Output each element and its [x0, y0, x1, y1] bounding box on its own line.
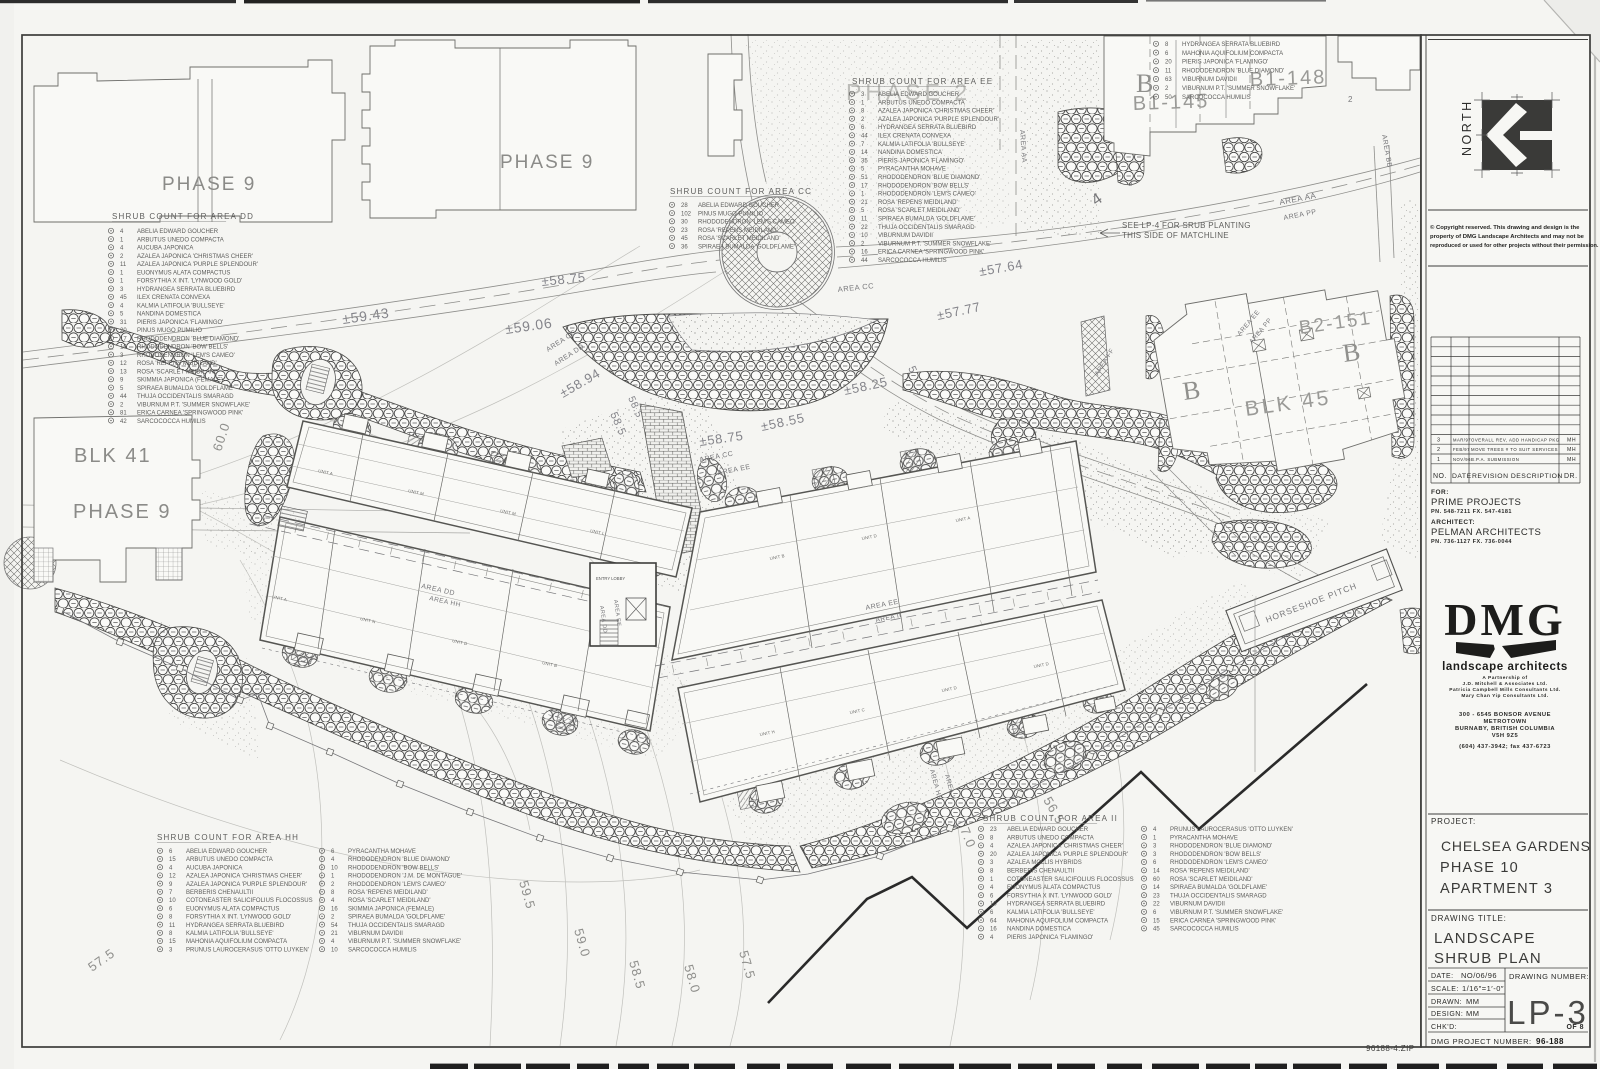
svg-text:THUJA OCCIDENTALIS SMARAGD: THUJA OCCIDENTALIS SMARAGD	[878, 225, 975, 231]
svg-text:20: 20	[120, 328, 127, 334]
svg-text:THUJA OCCIDENTALIS SMARAGD: THUJA OCCIDENTALIS SMARAGD	[1170, 893, 1267, 899]
svg-text:PHASE 10: PHASE 10	[1440, 860, 1519, 876]
svg-text:21: 21	[331, 931, 338, 937]
svg-text:PROJECT:: PROJECT:	[1431, 817, 1476, 826]
svg-text:20: 20	[990, 852, 997, 858]
svg-text:DMG PROJECT NUMBER:: DMG PROJECT NUMBER:	[1431, 1037, 1532, 1046]
svg-text:RHODODENDRON 'BLUE DIAMOND': RHODODENDRON 'BLUE DIAMOND'	[137, 336, 239, 342]
svg-text:RHODODENDRON 'BOW BELLS': RHODODENDRON 'BOW BELLS'	[878, 183, 969, 189]
svg-text:ROSA 'SCARLET MEIDILAND': ROSA 'SCARLET MEIDILAND'	[1170, 877, 1253, 883]
svg-text:APARTMENT 3: APARTMENT 3	[1440, 881, 1553, 897]
svg-text:30: 30	[681, 220, 688, 226]
svg-text:3: 3	[1128, 179, 1133, 188]
svg-text:36: 36	[681, 244, 688, 250]
svg-text:SPIRAEA BUMALDA 'GOLDFLAME': SPIRAEA BUMALDA 'GOLDFLAME'	[878, 217, 975, 223]
svg-text:11: 11	[120, 262, 127, 268]
svg-text:96-188: 96-188	[1536, 1037, 1564, 1046]
svg-text:PHASE 9: PHASE 9	[500, 152, 594, 173]
svg-text:NOV/96: NOV/96	[1453, 457, 1471, 462]
svg-text:11: 11	[1165, 68, 1172, 74]
svg-text:ARBUTUS UNEDO COMPACTA: ARBUTUS UNEDO COMPACTA	[1007, 835, 1094, 841]
svg-text:BERBERIS CHENAULTII: BERBERIS CHENAULTII	[1007, 869, 1075, 875]
svg-text:EUONYMUS ALATA COMPACTUS: EUONYMUS ALATA COMPACTUS	[186, 906, 279, 912]
svg-text:COTONEASTER SALICIFOLIUS FLOCO: COTONEASTER SALICIFOLIUS FLOCOSSUS	[1007, 877, 1134, 883]
svg-text:VIBURNUM DAVIDII: VIBURNUM DAVIDII	[1170, 902, 1225, 908]
svg-text:KALMIA LATIFOLIA 'BULLSEYE': KALMIA LATIFOLIA 'BULLSEYE'	[878, 142, 966, 148]
svg-text:DRAWING TITLE:: DRAWING TITLE:	[1431, 914, 1507, 923]
svg-text:SARCOCOCCA HUMILIS: SARCOCOCCA HUMILIS	[878, 258, 947, 264]
svg-text:RHODODENDRON 'BLUE DIAMOND': RHODODENDRON 'BLUE DIAMOND'	[878, 175, 980, 181]
svg-text:ROSA 'REPENS MEIDILAND': ROSA 'REPENS MEIDILAND'	[1170, 869, 1250, 875]
svg-text:© Copyright reserved. This dra: © Copyright reserved. This drawing and d…	[1430, 224, 1580, 231]
svg-text:MAHONIA AQUIFOLIUM COMPACTA: MAHONIA AQUIFOLIUM COMPACTA	[1007, 918, 1108, 924]
svg-text:AZALEA JAPONICA 'PURPLE SPLEND: AZALEA JAPONICA 'PURPLE SPLENDOUR'	[137, 262, 258, 268]
svg-text:3: 3	[1437, 438, 1441, 444]
svg-text:DR.: DR.	[1564, 473, 1578, 480]
svg-text:300 - 6545 BONSOR AVENUE: 300 - 6545 BONSOR AVENUE	[1459, 712, 1551, 718]
svg-text:ABELIA EDWARD GOUCHER: ABELIA EDWARD GOUCHER	[1007, 827, 1089, 833]
svg-text:Mary Chan Yip Consultants Ltd.: Mary Chan Yip Consultants Ltd.	[1461, 693, 1548, 699]
svg-text:PYRACANTHA MOHAVE: PYRACANTHA MOHAVE	[1170, 835, 1238, 841]
svg-text:VIBURNUM P.T. 'SUMMER SNOWFLAK: VIBURNUM P.T. 'SUMMER SNOWFLAKE'	[1182, 86, 1295, 92]
svg-text:PIERIS JAPONICA 'FLAMINGO': PIERIS JAPONICA 'FLAMINGO'	[878, 158, 964, 164]
svg-text:PHASE 9: PHASE 9	[162, 174, 256, 195]
svg-text:AZALEA JAPONICA 'CHRISTMAS CHE: AZALEA JAPONICA 'CHRISTMAS CHEER'	[137, 254, 253, 260]
svg-text:AZALEA JAPONICA 'PURPLE SPLEND: AZALEA JAPONICA 'PURPLE SPLENDOUR'	[1007, 852, 1128, 858]
svg-text:PRUNUS LAUROCERASUS 'OTTO LUYK: PRUNUS LAUROCERASUS 'OTTO LUYKEN'	[186, 947, 309, 953]
svg-text:64: 64	[990, 918, 997, 924]
svg-text:PELMAN ARCHITECTS: PELMAN ARCHITECTS	[1431, 527, 1541, 538]
svg-text:SARCOCOCCA HUMILIS: SARCOCOCCA HUMILIS	[1170, 927, 1239, 933]
svg-text:21: 21	[861, 200, 868, 206]
svg-text:MAHONIA AQUIFOLIUM COMPACTA: MAHONIA AQUIFOLIUM COMPACTA	[1182, 51, 1283, 57]
svg-text:20: 20	[1165, 60, 1172, 66]
svg-text:15: 15	[169, 857, 176, 863]
svg-text:SARCOCOCCA HUMILIS: SARCOCOCCA HUMILIS	[1182, 95, 1251, 101]
svg-text:KALMIA LATIFOLIA 'BULLSEYE': KALMIA LATIFOLIA 'BULLSEYE'	[186, 931, 274, 937]
svg-text:KALMIA LATIFOLIA 'BULLSEYE': KALMIA LATIFOLIA 'BULLSEYE'	[1007, 910, 1095, 916]
svg-text:PHASE 9: PHASE 9	[73, 501, 171, 523]
svg-text:METROTOWN: METROTOWN	[1483, 719, 1526, 725]
svg-text:VIBURNUM DAVIDII: VIBURNUM DAVIDII	[348, 931, 403, 937]
svg-text:54: 54	[331, 923, 338, 929]
svg-text:RHODODENDRON 'BLUE DIAMOND': RHODODENDRON 'BLUE DIAMOND'	[348, 857, 450, 863]
svg-text:14: 14	[1153, 869, 1160, 875]
svg-text:SPIRAEA BUMALDA 'GOLDFLAME': SPIRAEA BUMALDA 'GOLDFLAME'	[137, 386, 234, 392]
svg-text:AUCUBA JAPONICA: AUCUBA JAPONICA	[186, 865, 242, 871]
svg-text:10: 10	[169, 898, 176, 904]
svg-text:PIERIS JAPONICA 'FLAMINGO': PIERIS JAPONICA 'FLAMINGO'	[137, 320, 223, 326]
svg-text:SKIMMIA JAPONICA (FEMALE): SKIMMIA JAPONICA (FEMALE)	[137, 378, 223, 384]
svg-text:SPIRAEA BUMALDA 'GOLDFLAME': SPIRAEA BUMALDA 'GOLDFLAME'	[1170, 885, 1267, 891]
svg-text:PINUS MUGO PUMILIO: PINUS MUGO PUMILIO	[698, 211, 763, 217]
svg-text:ROSA 'SCARLET MEIDILAND': ROSA 'SCARLET MEIDILAND'	[137, 369, 220, 375]
svg-text:2: 2	[1348, 95, 1353, 104]
svg-text:property of DMG Landscape Arch: property of DMG Landscape Architects and…	[1430, 234, 1585, 240]
svg-text:FORSYTHIA X INT. 'LYNWOOD GOLD: FORSYTHIA X INT. 'LYNWOOD GOLD'	[1007, 893, 1112, 899]
svg-text:45: 45	[1153, 927, 1160, 933]
svg-text:45: 45	[120, 295, 127, 301]
svg-text:LANDSCAPE: LANDSCAPE	[1434, 930, 1536, 947]
svg-text:EUONYMUS ALATA COMPACTUS: EUONYMUS ALATA COMPACTUS	[137, 270, 230, 276]
svg-text:SARCOCOCCA HUMILIS: SARCOCOCCA HUMILIS	[348, 947, 417, 953]
svg-text:AUCUBA JAPONICA: AUCUBA JAPONICA	[137, 246, 193, 252]
svg-text:HYDRANGEA SERRATA BLUEBIRD: HYDRANGEA SERRATA BLUEBIRD	[186, 923, 285, 929]
svg-text:PYRACANTHA MOHAVE: PYRACANTHA MOHAVE	[348, 849, 416, 855]
svg-text:ERICA CARNEA 'SPRINGWOOD PINK': ERICA CARNEA 'SPRINGWOOD PINK'	[1170, 918, 1276, 924]
svg-text:ROSA 'SCARLET MEIDILAND': ROSA 'SCARLET MEIDILAND'	[698, 236, 781, 242]
svg-text:BURNABY, BRITISH COLUMBIA: BURNABY, BRITISH COLUMBIA	[1455, 726, 1555, 732]
svg-text:FEB/97: FEB/97	[1453, 447, 1470, 452]
svg-text:Patricia Campbell Mills Consul: Patricia Campbell Mills Consultants Ltd.	[1449, 687, 1560, 693]
svg-text:OF 8: OF 8	[1566, 1024, 1584, 1031]
svg-text:81: 81	[120, 411, 127, 417]
svg-text:ROSA 'REPENS MEIDILAND': ROSA 'REPENS MEIDILAND'	[348, 890, 428, 896]
svg-text:1/16″=1′-0″: 1/16″=1′-0″	[1462, 984, 1504, 993]
svg-text:ABELIA EDWARD GOUCHER: ABELIA EDWARD GOUCHER	[878, 92, 960, 98]
svg-text:VIBURNUM DAVIDII: VIBURNUM DAVIDII	[878, 233, 933, 239]
svg-text:ROSA 'REPENS MEIDILAND': ROSA 'REPENS MEIDILAND'	[137, 361, 217, 367]
svg-text:SPIRAEA BUMALDA 'GOLDFLAME': SPIRAEA BUMALDA 'GOLDFLAME'	[348, 915, 445, 921]
svg-text:VIBURNUM DAVIDII: VIBURNUM DAVIDII	[1182, 77, 1237, 83]
svg-text:AZALEA JAPONICA 'PURPLE SPLEND: AZALEA JAPONICA 'PURPLE SPLENDOUR'	[186, 882, 307, 888]
svg-text:RHODODENDRON 'BOW BELLS': RHODODENDRON 'BOW BELLS'	[137, 345, 228, 351]
svg-text:ROSA 'SCARLET MEIDILAND': ROSA 'SCARLET MEIDILAND'	[348, 898, 431, 904]
svg-text:PIERIS JAPONICA 'FLAMINGO': PIERIS JAPONICA 'FLAMINGO'	[1182, 60, 1268, 66]
svg-text:11: 11	[861, 217, 868, 223]
svg-text:A Partnership of: A Partnership of	[1482, 675, 1527, 681]
svg-text:EUONYMUS ALATA COMPACTUS: EUONYMUS ALATA COMPACTUS	[1007, 885, 1100, 891]
svg-text:NANDINA DOMESTICA: NANDINA DOMESTICA	[878, 150, 942, 156]
svg-text:ARBUTUS UNEDO COMPACTA: ARBUTUS UNEDO COMPACTA	[137, 237, 224, 243]
svg-text:1: 1	[1437, 457, 1441, 463]
svg-text:14: 14	[861, 150, 868, 156]
svg-text:2: 2	[1437, 447, 1441, 453]
svg-text:16: 16	[990, 927, 997, 933]
svg-text:42: 42	[120, 419, 127, 425]
svg-text:PINUS MUGO PUMILIO: PINUS MUGO PUMILIO	[137, 328, 202, 334]
svg-text:RHODODENDRON 'LEM'S CAMEO': RHODODENDRON 'LEM'S CAMEO'	[698, 220, 796, 226]
svg-text:ROSA 'REPENS MEIDILAND': ROSA 'REPENS MEIDILAND'	[698, 228, 778, 234]
svg-text:SHRUB PLAN: SHRUB PLAN	[1434, 950, 1542, 967]
svg-text:RHODODENDRON 'J.M. DE MONTAGUE: RHODODENDRON 'J.M. DE MONTAGUE'	[348, 874, 462, 880]
svg-text:AZALEA JAPONICA 'PURPLE SPLEND: AZALEA JAPONICA 'PURPLE SPLENDOUR'	[878, 117, 999, 123]
svg-text:AZALEA JAPONICA 'CHRISTMAS CHE: AZALEA JAPONICA 'CHRISTMAS CHEER'	[186, 874, 302, 880]
svg-text:102: 102	[681, 211, 692, 217]
svg-text:COTONEASTER SALICIFOLIUS FLOCO: COTONEASTER SALICIFOLIUS FLOCOSSUS	[186, 898, 313, 904]
svg-text:SPIRAEA BUMALDA 'GOLDFLAME': SPIRAEA BUMALDA 'GOLDFLAME'	[698, 244, 795, 250]
svg-text:RHODODENDRON 'BOW BELLS': RHODODENDRON 'BOW BELLS'	[1170, 852, 1261, 858]
svg-text:ENTRY LOBBY: ENTRY LOBBY	[596, 576, 625, 581]
svg-text:PYRACANTHA MOHAVE: PYRACANTHA MOHAVE	[878, 167, 946, 173]
svg-text:RHODODENDRON 'BOW BELLS': RHODODENDRON 'BOW BELLS'	[348, 865, 439, 871]
svg-text:23: 23	[990, 827, 997, 833]
svg-text:ARBUTUS UNEDO COMPACTA: ARBUTUS UNEDO COMPACTA	[878, 100, 965, 106]
svg-text:ABELIA EDWARD GOUCHER: ABELIA EDWARD GOUCHER	[186, 849, 268, 855]
svg-text:ROSA 'SCARLET MEIDILAND': ROSA 'SCARLET MEIDILAND'	[878, 208, 961, 214]
svg-text:MH: MH	[1567, 457, 1576, 463]
svg-text:CHELSEA GARDENS: CHELSEA GARDENS	[1441, 838, 1591, 854]
svg-text:OVERALL REV, ADD HANDICAP PKG: OVERALL REV, ADD HANDICAP PKG	[1471, 438, 1560, 443]
svg-text:17: 17	[861, 183, 868, 189]
svg-text:AZALEA JAPONICA 'CHRISTMAS CHE: AZALEA JAPONICA 'CHRISTMAS CHEER'	[1007, 844, 1123, 850]
svg-text:RHODODENDRON 'BLUE DIAMOND': RHODODENDRON 'BLUE DIAMOND'	[1182, 68, 1284, 74]
svg-text:THUJA OCCIDENTALIS SMARAGD: THUJA OCCIDENTALIS SMARAGD	[137, 394, 234, 400]
svg-text:DRAWN:: DRAWN:	[1431, 999, 1462, 1006]
svg-text:31: 31	[120, 320, 127, 326]
svg-text:DMG: DMG	[1444, 594, 1565, 645]
svg-text:landscape architects: landscape architects	[1442, 661, 1568, 673]
svg-text:13: 13	[120, 369, 127, 375]
svg-text:THUJA OCCIDENTALIS SMARAGD: THUJA OCCIDENTALIS SMARAGD	[348, 923, 445, 929]
svg-text:PRIME PROJECTS: PRIME PROJECTS	[1431, 497, 1521, 508]
svg-text:10: 10	[331, 947, 338, 953]
svg-text:ERICA CARNEA 'SPRINGWOOD PINK': ERICA CARNEA 'SPRINGWOOD PINK'	[878, 250, 984, 256]
svg-text:FORSYTHIA X INT. 'LYNWOOD GOLD: FORSYTHIA X INT. 'LYNWOOD GOLD'	[137, 279, 242, 285]
svg-text:PN. 548-7211 FX. 547-4181: PN. 548-7211 FX. 547-4181	[1431, 509, 1512, 515]
svg-text:AZALEA MOLLIS HYBRIDS: AZALEA MOLLIS HYBRIDS	[1007, 860, 1082, 866]
svg-text:HYDRANGEA SERRATA BLUEBIRD: HYDRANGEA SERRATA BLUEBIRD	[878, 125, 977, 131]
svg-text:(604) 437-3942; fax 437-6723: (604) 437-3942; fax 437-6723	[1459, 744, 1551, 750]
svg-text:12: 12	[169, 874, 176, 880]
svg-text:17: 17	[120, 336, 127, 342]
svg-text:PN. 736-1127 FX. 736-0044: PN. 736-1127 FX. 736-0044	[1431, 539, 1512, 545]
svg-text:BLK 41: BLK 41	[74, 445, 152, 467]
svg-text:VIBURNUM P.T. 'SUMMER SNOWFLAK: VIBURNUM P.T. 'SUMMER SNOWFLAKE'	[348, 939, 461, 945]
svg-text:RHODODENDRON 'LEM'S CAMEO': RHODODENDRON 'LEM'S CAMEO'	[1170, 860, 1268, 866]
svg-text:16: 16	[861, 250, 868, 256]
svg-text:NANDINA DOMESTICA: NANDINA DOMESTICA	[1007, 927, 1071, 933]
svg-text:NANDINA DOMESTICA: NANDINA DOMESTICA	[137, 312, 201, 318]
svg-text:96188-4.ZIP: 96188-4.ZIP	[1366, 1044, 1414, 1053]
svg-text:SKIMMIA JAPONICA (FEMALE): SKIMMIA JAPONICA (FEMALE)	[348, 906, 434, 912]
svg-text:35: 35	[861, 158, 868, 164]
svg-text:MH: MH	[1567, 447, 1576, 453]
svg-text:ARBUTUS UNEDO COMPACTA: ARBUTUS UNEDO COMPACTA	[186, 857, 273, 863]
svg-text:SHRUB COUNT FOR AREA HH: SHRUB COUNT FOR AREA HH	[157, 833, 299, 842]
svg-text:14: 14	[1153, 885, 1160, 891]
svg-text:DATE: DATE	[1452, 473, 1472, 480]
svg-text:HYDRANGEA SERRATA BLUEBIRD: HYDRANGEA SERRATA BLUEBIRD	[1007, 902, 1106, 908]
svg-text:10: 10	[990, 902, 997, 908]
svg-text:ILEX CRENATA CONVEXA: ILEX CRENATA CONVEXA	[137, 295, 210, 301]
svg-text:SHRUB COUNT FOR AREA EE: SHRUB COUNT FOR AREA EE	[852, 77, 993, 86]
svg-text:ILEX CRENATA CONVEXA: ILEX CRENATA CONVEXA	[878, 134, 951, 140]
svg-text:B.P.A. SUBMISSION: B.P.A. SUBMISSION	[1471, 457, 1519, 462]
svg-text:reproduced or used for other p: reproduced or used for other projects wi…	[1430, 243, 1599, 249]
svg-text:MH: MH	[1567, 438, 1576, 444]
svg-text:44: 44	[861, 134, 868, 140]
svg-text:10: 10	[331, 865, 338, 871]
svg-text:15: 15	[169, 939, 176, 945]
svg-text:VIBURNUM P.T. 'SUMMER SNOWFLAK: VIBURNUM P.T. 'SUMMER SNOWFLAKE'	[137, 402, 250, 408]
svg-text:MAHONIA AQUIFOLIUM COMPACTA: MAHONIA AQUIFOLIUM COMPACTA	[186, 939, 287, 945]
svg-text:NORTH: NORTH	[1460, 99, 1474, 156]
svg-text:15: 15	[1153, 918, 1160, 924]
svg-text:ARCHITECT:: ARCHITECT:	[1431, 519, 1475, 526]
svg-text:44: 44	[861, 258, 868, 264]
svg-text:DATE:: DATE:	[1431, 973, 1454, 980]
svg-text:PRUNUS LAUROCERASUS 'OTTO LUYK: PRUNUS LAUROCERASUS 'OTTO LUYKEN'	[1170, 827, 1293, 833]
svg-text:22: 22	[861, 225, 868, 231]
svg-text:12: 12	[120, 361, 127, 367]
svg-text:22: 22	[1153, 902, 1160, 908]
svg-text:AZALEA JAPONICA 'CHRISTMAS CHE: AZALEA JAPONICA 'CHRISTMAS CHEER'	[878, 109, 994, 115]
svg-text:16: 16	[331, 906, 338, 912]
svg-text:60: 60	[1153, 877, 1160, 883]
svg-text:DESIGN:: DESIGN:	[1431, 1011, 1463, 1018]
svg-text:ABELIA EDWARD GOUCHER: ABELIA EDWARD GOUCHER	[698, 203, 780, 209]
svg-text:MOVE TREES # TO SUIT SERVICES: MOVE TREES # TO SUIT SERVICES	[1471, 447, 1558, 452]
svg-text:11: 11	[169, 923, 176, 929]
svg-text:RHODODENDRON 'BLUE DIAMOND': RHODODENDRON 'BLUE DIAMOND'	[1170, 844, 1272, 850]
svg-text:ROSA 'REPENS MEIDILAND': ROSA 'REPENS MEIDILAND'	[878, 200, 958, 206]
svg-text:SHRUB COUNT FOR AREA CC: SHRUB COUNT FOR AREA CC	[670, 187, 812, 196]
svg-text:16: 16	[120, 345, 127, 351]
svg-text:BERBERIS CHENAULTII: BERBERIS CHENAULTII	[186, 890, 254, 896]
svg-text:45: 45	[681, 236, 688, 242]
svg-text:44: 44	[120, 394, 127, 400]
svg-text:ERICA CARNEA 'SPRINGWOOD PINK': ERICA CARNEA 'SPRINGWOOD PINK'	[137, 411, 243, 417]
svg-text:CHK'D:: CHK'D:	[1431, 1024, 1457, 1031]
svg-text:63: 63	[1165, 77, 1172, 83]
svg-text:VIBURNUM P.T. 'SUMMER SNOWFLAK: VIBURNUM P.T. 'SUMMER SNOWFLAKE'	[878, 241, 991, 247]
svg-text:10: 10	[861, 233, 868, 239]
svg-text:RHODODENDRON 'LEM'S CAMEO': RHODODENDRON 'LEM'S CAMEO'	[137, 353, 235, 359]
svg-text:V5H 9Z5: V5H 9Z5	[1492, 733, 1519, 739]
svg-text:HYDRANGEA SERRATA BLUEBIRD: HYDRANGEA SERRATA BLUEBIRD	[1182, 42, 1281, 48]
svg-text:28: 28	[681, 203, 688, 209]
svg-text:DRAWING NUMBER:: DRAWING NUMBER:	[1509, 972, 1589, 981]
svg-text:HYDRANGEA SERRATA BLUEBIRD: HYDRANGEA SERRATA BLUEBIRD	[137, 287, 236, 293]
svg-text:23: 23	[681, 228, 688, 234]
svg-text:NO.: NO.	[1433, 473, 1447, 480]
svg-text:SHRUB COUNT FOR AREA DD: SHRUB COUNT FOR AREA DD	[112, 212, 254, 221]
svg-text:ABELIA EDWARD GOUCHER: ABELIA EDWARD GOUCHER	[137, 229, 219, 235]
svg-text:23: 23	[1153, 893, 1160, 899]
svg-text:SARCOCOCCA HUMILIS: SARCOCOCCA HUMILIS	[137, 419, 206, 425]
svg-text:PIERIS JAPONICA 'FLAMINGO': PIERIS JAPONICA 'FLAMINGO'	[1007, 935, 1093, 941]
svg-text:J.D. Mitchell & Associates Ltd: J.D. Mitchell & Associates Ltd.	[1463, 681, 1548, 687]
svg-text:NO/06/96: NO/06/96	[1461, 971, 1497, 980]
svg-text:50: 50	[1165, 95, 1172, 101]
svg-text:51: 51	[861, 175, 868, 181]
svg-text:KALMIA LATIFOLIA 'BULLSEYE': KALMIA LATIFOLIA 'BULLSEYE'	[137, 303, 225, 309]
svg-text:THIS SIDE OF MATCHLINE: THIS SIDE OF MATCHLINE	[1122, 231, 1229, 240]
svg-text:REVISION DESCRIPTION: REVISION DESCRIPTION	[1472, 473, 1563, 480]
svg-text:RHODODENDRON 'LEM'S CAMEO': RHODODENDRON 'LEM'S CAMEO'	[348, 882, 446, 888]
svg-text:SHRUB COUNT FOR AREA II: SHRUB COUNT FOR AREA II	[983, 814, 1118, 823]
svg-text:MM: MM	[1466, 997, 1480, 1006]
svg-text:MAR/97: MAR/97	[1453, 438, 1471, 443]
svg-text:SEE LP-4 FOR SRUB PLANTING: SEE LP-4 FOR SRUB PLANTING	[1122, 221, 1251, 230]
svg-text:FOR:: FOR:	[1431, 489, 1449, 496]
svg-text:RHODODENDRON 'LEM'S CAMEO': RHODODENDRON 'LEM'S CAMEO'	[878, 192, 976, 198]
svg-text:SCALE:: SCALE:	[1431, 986, 1459, 993]
svg-text:MM: MM	[1466, 1009, 1480, 1018]
svg-text:FORSYTHIA X INT. 'LYNWOOD GOLD: FORSYTHIA X INT. 'LYNWOOD GOLD'	[186, 915, 291, 921]
svg-text:VIBURNUM P.T. 'SUMMER SNOWFLAK: VIBURNUM P.T. 'SUMMER SNOWFLAKE'	[1170, 910, 1283, 916]
